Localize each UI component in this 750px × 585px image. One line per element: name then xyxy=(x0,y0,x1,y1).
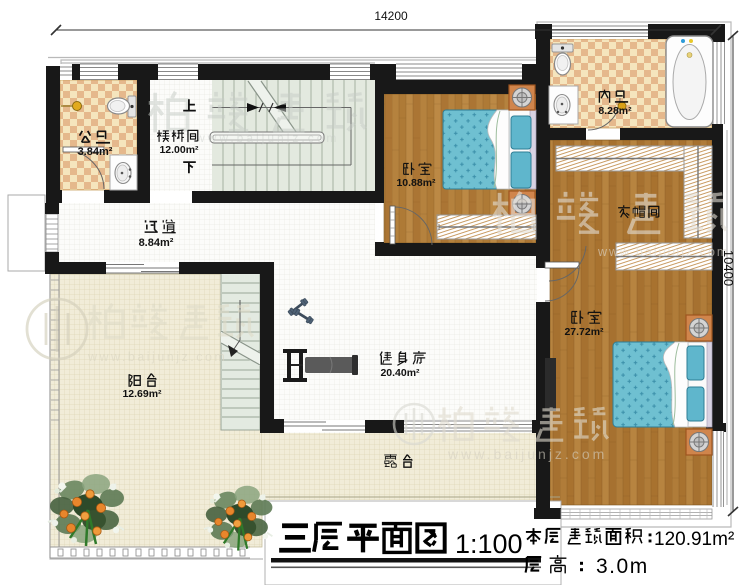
svg-text:3.84m²: 3.84m² xyxy=(78,146,113,158)
svg-text:8.84m²: 8.84m² xyxy=(139,237,174,249)
svg-text:27.72m²: 27.72m² xyxy=(564,326,604,338)
svg-text:14200: 14200 xyxy=(374,9,408,23)
svg-text:10400: 10400 xyxy=(721,250,736,286)
svg-text:120.91m²: 120.91m² xyxy=(654,529,734,550)
svg-text:www.baijunjz.com: www.baijunjz.com xyxy=(87,350,227,364)
svg-text:8.28m²: 8.28m² xyxy=(598,105,632,117)
svg-text:10.88m²: 10.88m² xyxy=(396,177,436,189)
svg-text:www.baijunjz.com: www.baijunjz.com xyxy=(447,446,607,462)
svg-text:www.baijunjz.com: www.baijunjz.com xyxy=(597,245,729,259)
svg-text:www.baijunjz.com: www.baijunjz.com xyxy=(195,131,339,145)
svg-text:3.0m: 3.0m xyxy=(596,555,649,578)
svg-text:1:100: 1:100 xyxy=(455,529,523,559)
svg-text:12.69m²: 12.69m² xyxy=(122,388,162,400)
svg-text:12.00m²: 12.00m² xyxy=(159,144,199,156)
svg-text:20.40m²: 20.40m² xyxy=(380,367,420,379)
